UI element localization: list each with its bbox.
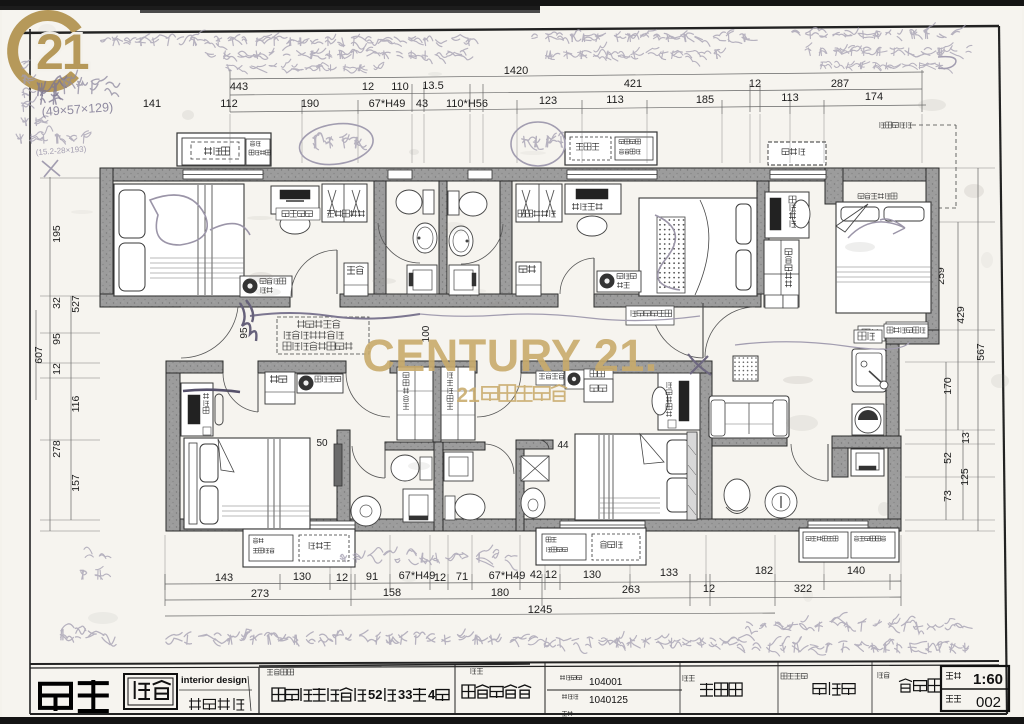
svg-text:67*H49: 67*H49 <box>369 98 406 110</box>
svg-text:1245: 1245 <box>528 604 552 616</box>
svg-text:13.5: 13.5 <box>422 80 443 92</box>
svg-text:12: 12 <box>336 572 348 584</box>
svg-text:527: 527 <box>70 295 82 313</box>
svg-text:71: 71 <box>456 571 468 583</box>
svg-text:1420: 1420 <box>504 65 528 77</box>
svg-text:12: 12 <box>703 583 715 595</box>
svg-text:263: 263 <box>622 584 640 596</box>
svg-text:113: 113 <box>781 92 799 104</box>
svg-text:002: 002 <box>976 694 1001 711</box>
svg-text:190: 190 <box>301 98 319 110</box>
svg-text:195: 195 <box>51 225 63 243</box>
svg-text:95: 95 <box>51 333 63 345</box>
svg-text:421: 421 <box>624 78 642 90</box>
svg-text:143: 143 <box>215 572 233 584</box>
svg-text:52: 52 <box>942 452 954 464</box>
svg-text:42: 42 <box>530 569 542 581</box>
svg-text:123: 123 <box>539 95 557 107</box>
svg-text:185: 185 <box>696 94 714 106</box>
svg-text:1040125: 1040125 <box>589 695 628 706</box>
svg-text:113: 113 <box>606 94 624 106</box>
svg-text:110: 110 <box>391 81 409 93</box>
svg-text:50: 50 <box>316 438 328 449</box>
svg-text:91: 91 <box>366 571 378 583</box>
svg-text:12: 12 <box>51 363 63 375</box>
svg-text:73: 73 <box>942 490 954 502</box>
svg-text:43: 43 <box>416 98 428 110</box>
svg-text:112: 112 <box>220 98 238 110</box>
svg-text:125: 125 <box>959 468 971 486</box>
svg-text:273: 273 <box>251 588 269 600</box>
svg-text:32: 32 <box>51 297 63 309</box>
svg-text:52: 52 <box>368 687 382 702</box>
svg-text:CENTURY 21.: CENTURY 21. <box>362 330 658 381</box>
svg-text:141: 141 <box>143 98 161 110</box>
svg-text:12: 12 <box>749 78 761 90</box>
svg-text:4: 4 <box>428 687 436 702</box>
svg-text:130: 130 <box>583 569 601 581</box>
svg-text:287: 287 <box>831 78 849 90</box>
svg-text:567: 567 <box>975 343 987 361</box>
svg-text:429: 429 <box>955 306 967 324</box>
svg-text:443: 443 <box>230 81 248 93</box>
svg-text:182: 182 <box>755 565 773 577</box>
svg-text:95: 95 <box>239 327 250 339</box>
svg-text:12: 12 <box>545 569 557 581</box>
svg-text:278: 278 <box>51 440 63 458</box>
svg-text:interior design: interior design <box>181 675 247 686</box>
svg-text:12: 12 <box>362 81 374 93</box>
svg-text:140: 140 <box>847 565 865 577</box>
svg-text:21: 21 <box>456 384 480 407</box>
svg-text:116: 116 <box>70 395 82 412</box>
svg-text:170: 170 <box>942 377 954 395</box>
svg-text:110*H56: 110*H56 <box>446 98 488 110</box>
svg-text:13: 13 <box>960 432 972 444</box>
svg-text:67*H49: 67*H49 <box>489 570 526 582</box>
svg-text:157: 157 <box>70 474 82 492</box>
svg-text:1:60: 1:60 <box>973 671 1003 688</box>
svg-text:44: 44 <box>557 440 569 451</box>
svg-text:180: 180 <box>491 587 509 599</box>
svg-text:607: 607 <box>33 346 45 364</box>
svg-text:158: 158 <box>383 587 401 599</box>
svg-text:12: 12 <box>434 572 446 584</box>
svg-text:130: 130 <box>293 571 311 583</box>
svg-text:174: 174 <box>865 91 883 103</box>
svg-text:104001: 104001 <box>589 677 623 688</box>
svg-text:33: 33 <box>398 687 412 702</box>
svg-text:133: 133 <box>660 567 678 579</box>
